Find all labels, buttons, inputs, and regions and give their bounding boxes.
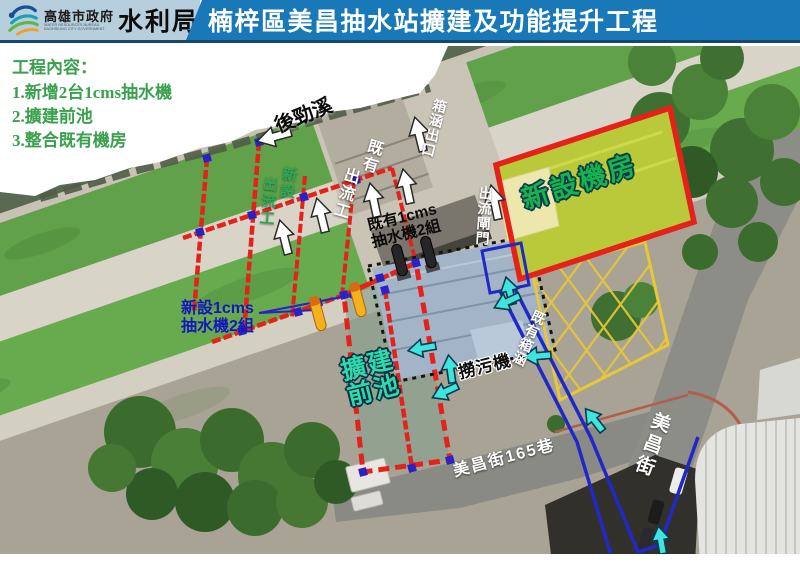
project-scope-list: 工程內容： 1.新增2台1cms抽水機 2.擴建前池 3.整合既有機房 — [12, 53, 172, 153]
new-pumps-line1: 新設1cms — [181, 300, 254, 318]
project-scope-item: 3.整合既有機房 — [12, 129, 172, 153]
project-scope-item: 2.擴建前池 — [12, 105, 172, 129]
project-scope-heading: 工程內容： — [12, 53, 172, 78]
slide: 高雄市政府 WATER RESOURCES BUREAU KAOHSIUNG C… — [0, 0, 800, 563]
new-pumps-line2: 抽水機2組 — [181, 318, 254, 336]
new-pumps-label: 新設1cms 抽水機2組 — [181, 300, 254, 336]
new-outflow-label-left: 出流工 — [257, 175, 278, 227]
new-outflow-label-right: 新設 — [277, 165, 297, 201]
outflow-gate-label: 出流閘門 — [474, 186, 493, 247]
project-scope-item: 1.新增2台1cms抽水機 — [12, 81, 172, 105]
